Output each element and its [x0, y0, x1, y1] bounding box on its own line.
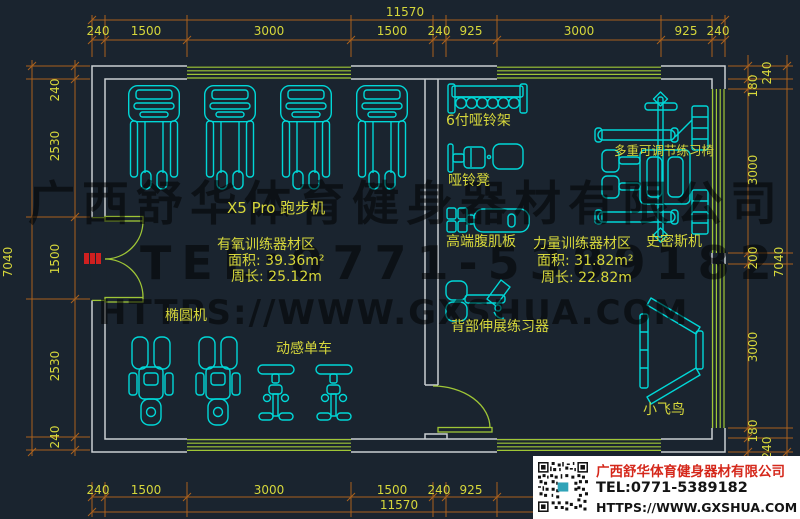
zone-cardio-area: 面积: 39.36m² — [228, 254, 325, 268]
cad-viewport[interactable]: 11570 240 1500 3000 1500 240 925 3000 92… — [0, 0, 800, 519]
panel-company: 广西舒华体育健身器材有限公司 — [596, 460, 785, 480]
dim-top-total: 11570 — [386, 6, 424, 18]
dim-left-4: 240 — [49, 426, 61, 449]
dim-right-total: 7040 — [773, 247, 785, 278]
door-marker — [84, 253, 101, 264]
dim-left-0: 240 — [49, 79, 61, 102]
info-panel: 广西舒华体育健身器材有限公司 TEL:0771-5389182 HTTPS://… — [533, 456, 800, 519]
treadmill-icon — [281, 86, 332, 189]
dim-right-3: 200 — [747, 247, 759, 270]
label-elliptical: 椭圆机 — [165, 309, 207, 323]
watermark-company: 广西舒华体育健身器材有限公司 — [28, 181, 784, 228]
spin-bike-icon — [316, 365, 352, 420]
dim-left-3: 2530 — [49, 351, 61, 382]
elliptical-icon — [196, 337, 240, 425]
label-dumbbell-rack: 6付哑铃架 — [446, 114, 511, 128]
dim-top-4: 240 — [428, 25, 451, 37]
dim-right-0: 240 — [761, 62, 773, 85]
dim-top-8: 240 — [707, 25, 730, 37]
dim-right-2: 3000 — [747, 155, 759, 186]
label-smith-machine: 史密斯机 — [646, 235, 702, 249]
dim-right-5: 180 — [747, 420, 759, 443]
dim-bottom-5: 925 — [460, 484, 483, 496]
zone-strength-area: 面积: 31.82m² — [537, 254, 634, 268]
dim-bottom-0: 240 — [87, 484, 110, 496]
zone-strength-perimeter: 周长: 22.82m — [541, 271, 632, 285]
zone-cardio-name: 有氧训练器材区 — [217, 238, 315, 252]
dim-top-0: 240 — [87, 25, 110, 37]
dim-top-2: 3000 — [254, 25, 285, 37]
dim-bottom-1: 1500 — [131, 484, 162, 496]
dim-left-1: 2530 — [49, 131, 61, 162]
label-dumbbell-bench: 哑铃凳 — [448, 174, 490, 188]
label-cable-fly: 小飞鸟 — [643, 403, 685, 417]
dumbbell-bench-icon — [448, 144, 523, 172]
spin-bike-icon — [258, 365, 294, 420]
dim-top-1: 1500 — [131, 25, 162, 37]
partition-door — [433, 386, 492, 432]
qr-logo — [558, 482, 569, 491]
label-adjustable-chair: 多重可调节练习椅 — [614, 145, 714, 158]
zone-cardio-perimeter: 周长: 25.12m — [231, 270, 322, 284]
dim-right-4: 3000 — [747, 332, 759, 363]
label-spin-bike: 动感单车 — [276, 342, 332, 356]
label-treadmill: X5 Pro 跑步机 — [227, 201, 325, 216]
treadmill-icon — [129, 86, 180, 189]
dim-top-5: 925 — [460, 25, 483, 37]
dim-top-6: 3000 — [564, 25, 595, 37]
panel-tel: TEL:0771-5389182 — [596, 480, 748, 496]
dim-bottom-total: 11570 — [380, 499, 418, 511]
dim-right-1: 180 — [747, 75, 759, 98]
label-ab-board: 高端腹肌板 — [446, 235, 516, 249]
dim-bottom-3: 1500 — [377, 484, 408, 496]
dim-left-2: 1500 — [49, 244, 61, 275]
label-back-extension: 背部伸展练习器 — [451, 320, 549, 334]
qr-code — [538, 462, 588, 512]
dim-bottom-4: 240 — [428, 484, 451, 496]
dim-bottom-2: 3000 — [254, 484, 285, 496]
treadmill-icon — [205, 86, 256, 189]
dim-left-total: 7040 — [2, 247, 14, 278]
zone-strength-name: 力量训练器材区 — [533, 237, 631, 251]
elliptical-icon — [129, 337, 173, 425]
treadmill-icon — [357, 86, 408, 189]
partition-wall — [425, 79, 438, 385]
dim-top-3: 1500 — [377, 25, 408, 37]
dumbbell-rack-icon — [448, 84, 527, 113]
panel-website: HTTPS://WWW.GXSHUA.COM — [596, 500, 797, 515]
dim-top-7: 925 — [675, 25, 698, 37]
